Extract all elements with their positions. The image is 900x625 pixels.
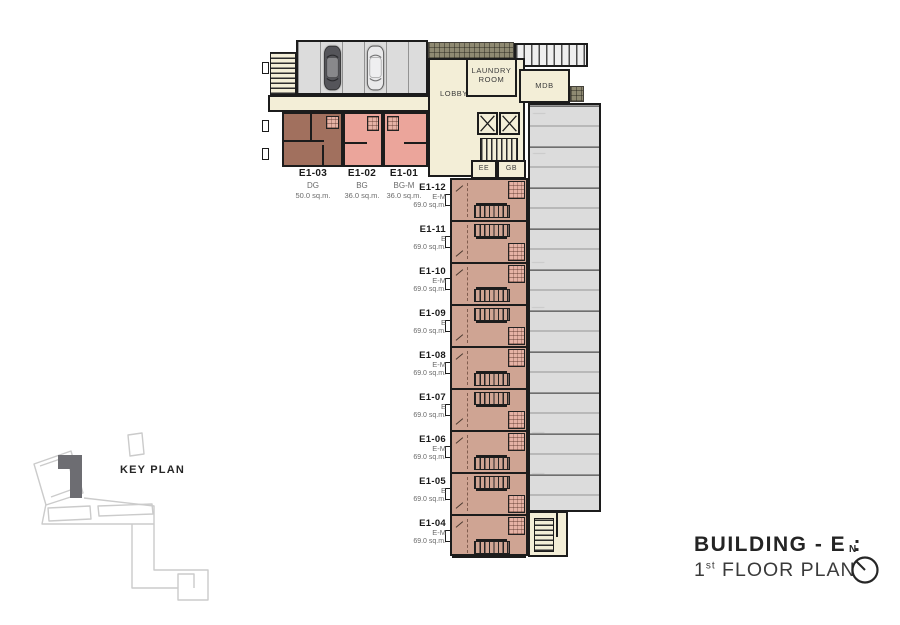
elevator-shaft-icon <box>477 112 498 135</box>
units-wing <box>450 178 528 556</box>
unit-area: 69.0 sq.m. <box>394 412 446 420</box>
unit-area: 69.0 sq.m. <box>394 538 446 546</box>
car-icon <box>530 153 574 172</box>
unit-type: E-M <box>394 529 446 538</box>
unit-label: E1-09 E 69.0 sq.m. <box>394 308 446 336</box>
unit-label: E1-04 E-M 69.0 sq.m. <box>394 518 446 546</box>
unit-room-e1-03 <box>282 112 343 167</box>
partition-dashed-line <box>467 351 468 385</box>
unit-room <box>452 432 526 474</box>
door-mark-icon <box>456 250 464 257</box>
bathroom-pod-icon <box>508 181 525 199</box>
bathroom-pod-icon <box>508 495 525 513</box>
floor-label: FLOOR PLAN <box>716 559 856 581</box>
interior-wall <box>476 405 507 407</box>
interior-wall <box>476 237 507 239</box>
bathroom-pod-icon <box>508 243 525 261</box>
interior-wall <box>476 321 507 323</box>
floor-plan-title: 1st FLOOR PLAN <box>694 559 856 582</box>
stair-room-top-left <box>270 52 296 95</box>
unit-type: E <box>394 403 446 412</box>
key-plan-drawing <box>28 430 238 602</box>
unit-room <box>452 222 526 264</box>
floor-number: 1 <box>694 559 706 581</box>
unit-area: 69.0 sq.m. <box>394 286 446 294</box>
north-arrow-icon: N <box>844 540 884 588</box>
interior-wall <box>476 371 507 373</box>
unit-room-e1-01 <box>383 112 428 167</box>
door-mark-icon <box>456 418 464 425</box>
unit-stairs-icon <box>474 224 510 237</box>
stair-room-bottom <box>528 511 568 557</box>
unit-area: 69.0 sq.m. <box>394 496 446 504</box>
partition-dashed-line <box>467 477 468 511</box>
unit-stairs-icon <box>474 457 510 470</box>
car-icon <box>529 262 573 281</box>
partition-dashed-line <box>467 435 468 469</box>
unit-type: E <box>394 487 446 496</box>
door-mark-icon <box>456 269 464 276</box>
walkway-hatch-icon <box>428 42 514 59</box>
building-title: BUILDING - E : <box>694 533 862 557</box>
car-icon <box>530 113 574 132</box>
unit-type: E-M <box>394 277 446 286</box>
interior-wall <box>476 287 507 289</box>
unit-type: E <box>394 235 446 244</box>
unit-id: E1-01 <box>376 168 432 181</box>
laundry-label-line1: LAUNDRY <box>466 66 517 75</box>
car-icon <box>529 307 573 326</box>
unit-label: E1-06 E-M 69.0 sq.m. <box>394 434 446 462</box>
unit-area: 69.0 sq.m. <box>394 244 446 252</box>
unit-label: E1-08 E-M 69.0 sq.m. <box>394 350 446 378</box>
partition-dashed-line <box>467 309 468 343</box>
unit-type: E-M <box>394 361 446 370</box>
laundry-label: LAUNDRY ROOM <box>466 66 517 84</box>
unit-stairs-icon <box>474 392 510 405</box>
door-mark-icon <box>456 185 464 192</box>
unit-label-e1-03: E1-03 DG 50.0 sq.m. <box>285 168 341 200</box>
top-parking-area <box>296 40 428 95</box>
interior-wall <box>476 455 507 457</box>
unit-room-e1-02 <box>343 112 383 167</box>
unit-id: E1-09 <box>394 308 446 319</box>
unit-room <box>452 516 526 558</box>
unit-type: E <box>394 319 446 328</box>
unit-room <box>452 180 526 222</box>
unit-stairs-icon <box>474 205 510 218</box>
keyplan-building-e-highlight <box>58 455 82 498</box>
ledge-icon <box>262 62 269 74</box>
car-icon <box>529 473 573 492</box>
unit-area: 69.0 sq.m. <box>394 202 446 210</box>
unit-room <box>452 264 526 306</box>
unit-stairs-icon <box>474 476 510 489</box>
key-plan-label: KEY PLAN <box>120 464 185 476</box>
unit-room <box>452 306 526 348</box>
unit-label: E1-10 E-M 69.0 sq.m. <box>394 266 446 294</box>
unit-label: E1-11 E 69.0 sq.m. <box>394 224 446 252</box>
unit-type: E-M <box>394 445 446 454</box>
partition-dashed-line <box>467 225 468 259</box>
corridor <box>268 95 430 112</box>
door-mark-icon <box>456 353 464 360</box>
interior-wall <box>476 203 507 205</box>
interior-wall <box>476 539 507 541</box>
door-mark-icon <box>456 437 464 444</box>
door-mark-icon <box>456 502 464 509</box>
car-icon <box>529 432 573 451</box>
unit-stairs-icon <box>474 289 510 302</box>
unit-room <box>452 348 526 390</box>
unit-room <box>452 474 526 516</box>
unit-stairs-icon <box>474 308 510 321</box>
north-label: N <box>849 544 856 555</box>
bathroom-pod-icon <box>508 411 525 429</box>
bathroom-pod-icon <box>508 349 525 367</box>
unit-stairs-icon <box>474 373 510 386</box>
door-mark-icon <box>456 521 464 528</box>
floor-plan-page: LOBBY LAUNDRY ROOM MDB EE GB <box>0 0 900 625</box>
ledge-icon <box>262 120 269 132</box>
ramp-hatch <box>514 43 588 67</box>
bathroom-pod-icon <box>508 433 525 451</box>
bathroom-pod-icon <box>508 327 525 345</box>
unit-room <box>452 390 526 432</box>
unit-label: E1-05 E 69.0 sq.m. <box>394 476 446 504</box>
unit-type: E-M <box>394 193 446 202</box>
unit-area: 69.0 sq.m. <box>394 328 446 336</box>
unit-label: E1-07 E 69.0 sq.m. <box>394 392 446 420</box>
laundry-label-line2: ROOM <box>466 75 517 84</box>
unit-area: 50.0 sq.m. <box>285 191 341 200</box>
unit-id: E1-11 <box>394 224 446 235</box>
car-icon <box>366 45 385 91</box>
interior-wall <box>476 489 507 491</box>
unit-id: E1-07 <box>394 392 446 403</box>
mdb-label: MDB <box>519 81 570 90</box>
partition-dashed-line <box>467 267 468 301</box>
unit-label: E1-12 E-M 69.0 sq.m. <box>394 182 446 210</box>
door-mark-icon <box>456 334 464 341</box>
unit-id: E1-03 <box>285 168 341 181</box>
unit-type: DG <box>285 181 341 191</box>
gb-label: GB <box>497 165 526 172</box>
ledge-icon <box>262 148 269 160</box>
unit-id: E1-05 <box>394 476 446 487</box>
elevator-shaft-icon <box>499 112 520 135</box>
ee-label: EE <box>471 165 497 172</box>
unit-area: 69.0 sq.m. <box>394 454 446 462</box>
partition-dashed-line <box>467 519 468 553</box>
floor-ordinal: st <box>706 561 716 572</box>
car-icon <box>323 45 342 91</box>
bathroom-pod-icon <box>508 265 525 283</box>
walkway-hatch-icon <box>570 86 584 102</box>
partition-dashed-line <box>467 393 468 427</box>
unit-stairs-icon <box>474 541 510 554</box>
unit-area: 69.0 sq.m. <box>394 370 446 378</box>
bathroom-pod-icon <box>508 517 525 535</box>
partition-dashed-line <box>467 183 468 217</box>
